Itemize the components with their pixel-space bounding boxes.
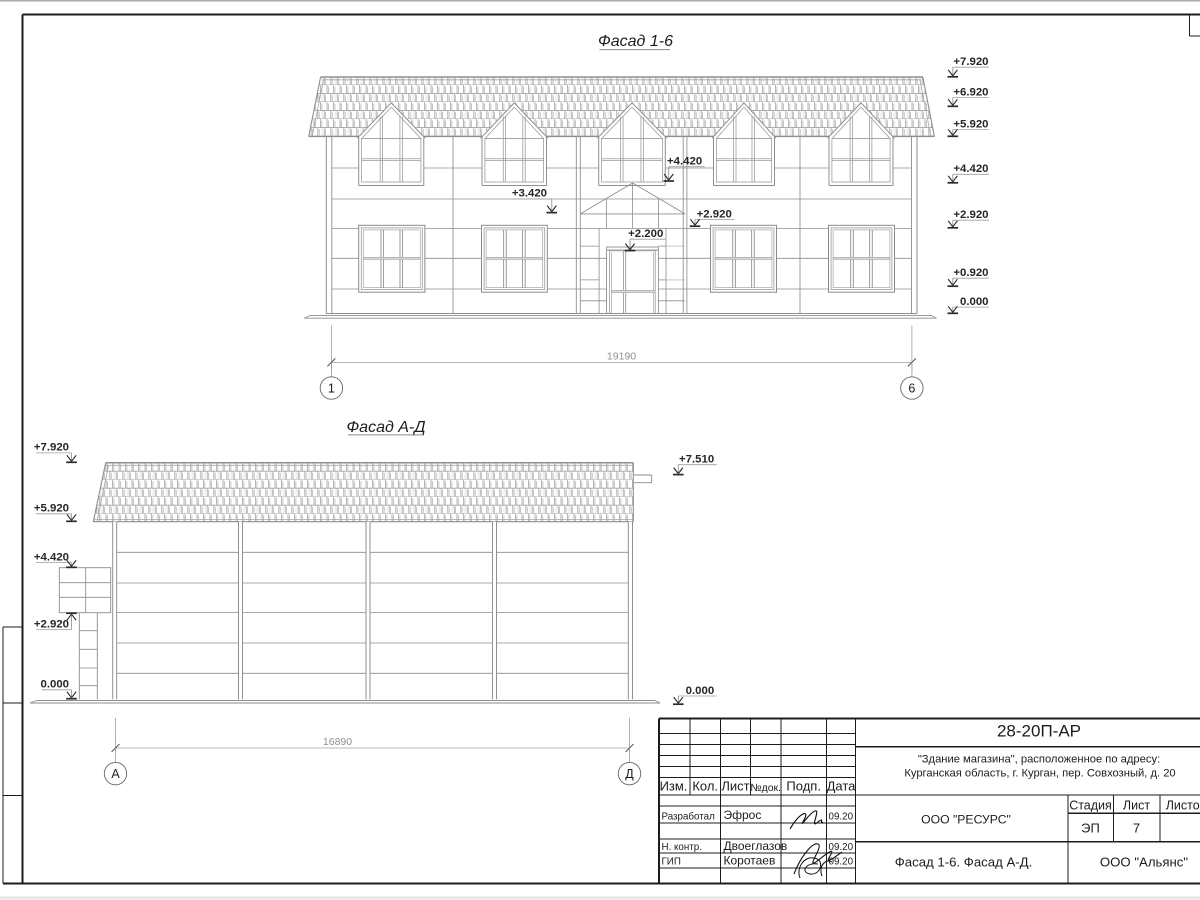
- svg-text:Изм.: Изм.: [660, 779, 688, 794]
- svg-text:+5.920: +5.920: [34, 503, 69, 515]
- svg-text:0.000: 0.000: [686, 685, 715, 697]
- svg-text:+2.920: +2.920: [953, 209, 988, 221]
- svg-text:Двоеглазов: Двоеглазов: [724, 839, 788, 853]
- svg-text:09.20: 09.20: [829, 842, 854, 853]
- svg-text:ООО "Альянс": ООО "Альянс": [1100, 855, 1188, 870]
- svg-text:ООО "РЕСУРС": ООО "РЕСУРС": [921, 813, 1011, 827]
- svg-text:+7.510: +7.510: [679, 454, 714, 466]
- svg-text:ГИП: ГИП: [662, 857, 681, 868]
- svg-text:Листов: Листов: [1166, 799, 1200, 813]
- svg-text:16890: 16890: [323, 736, 352, 748]
- svg-text:+2.920: +2.920: [697, 208, 732, 220]
- svg-text:Эфрос: Эфрос: [724, 808, 762, 822]
- svg-text:+4.420: +4.420: [667, 156, 702, 168]
- svg-text:Н. контр.: Н. контр.: [662, 842, 702, 853]
- svg-text:+7.920: +7.920: [34, 442, 69, 454]
- svg-text:1: 1: [328, 381, 335, 395]
- svg-text:+0.920: +0.920: [953, 267, 988, 279]
- svg-text:ЭП: ЭП: [1081, 821, 1100, 836]
- svg-text:+4.420: +4.420: [34, 551, 69, 563]
- svg-text:+2.920: +2.920: [34, 618, 69, 630]
- svg-text:Коротаев: Коротаев: [724, 854, 776, 868]
- svg-text:0.000: 0.000: [960, 296, 989, 308]
- svg-text:Дата: Дата: [827, 779, 857, 794]
- svg-text:Д: Д: [625, 767, 634, 781]
- svg-text:7: 7: [1133, 821, 1140, 836]
- svg-text:"Здание магазина", расположенн: "Здание магазина", расположенное по адре…: [918, 753, 1160, 765]
- svg-text:0.000: 0.000: [40, 679, 69, 691]
- svg-text:Фасад А-Д: Фасад А-Д: [346, 419, 425, 436]
- svg-text:Лист: Лист: [721, 779, 749, 794]
- svg-text:№док.: №док.: [750, 782, 781, 794]
- svg-text:+5.920: +5.920: [953, 118, 988, 130]
- svg-text:Лист: Лист: [1123, 799, 1150, 813]
- svg-text:Стадия: Стадия: [1069, 799, 1112, 813]
- svg-text:28-20П-АР: 28-20П-АР: [997, 722, 1081, 741]
- svg-text:6: 6: [908, 381, 915, 395]
- svg-text:+7.920: +7.920: [953, 56, 988, 68]
- svg-text:Разработал: Разработал: [662, 812, 716, 823]
- svg-text:Курганская область, г. Курган,: Курганская область, г. Курган, пер. Совх…: [904, 767, 1175, 779]
- svg-text:Кол.: Кол.: [692, 779, 718, 794]
- svg-text:Фасад 1-6. Фасад А-Д.: Фасад 1-6. Фасад А-Д.: [895, 855, 1032, 870]
- svg-text:19190: 19190: [607, 350, 636, 362]
- svg-text:+4.420: +4.420: [953, 163, 988, 175]
- svg-text:+3.420: +3.420: [512, 188, 547, 200]
- svg-text:А: А: [111, 767, 120, 781]
- svg-text:Подп.: Подп.: [786, 779, 821, 794]
- svg-text:+2.200: +2.200: [628, 228, 663, 240]
- svg-text:Фасад 1-6: Фасад 1-6: [598, 33, 673, 50]
- svg-text:+6.920: +6.920: [953, 86, 988, 98]
- svg-text:09.20: 09.20: [829, 812, 854, 823]
